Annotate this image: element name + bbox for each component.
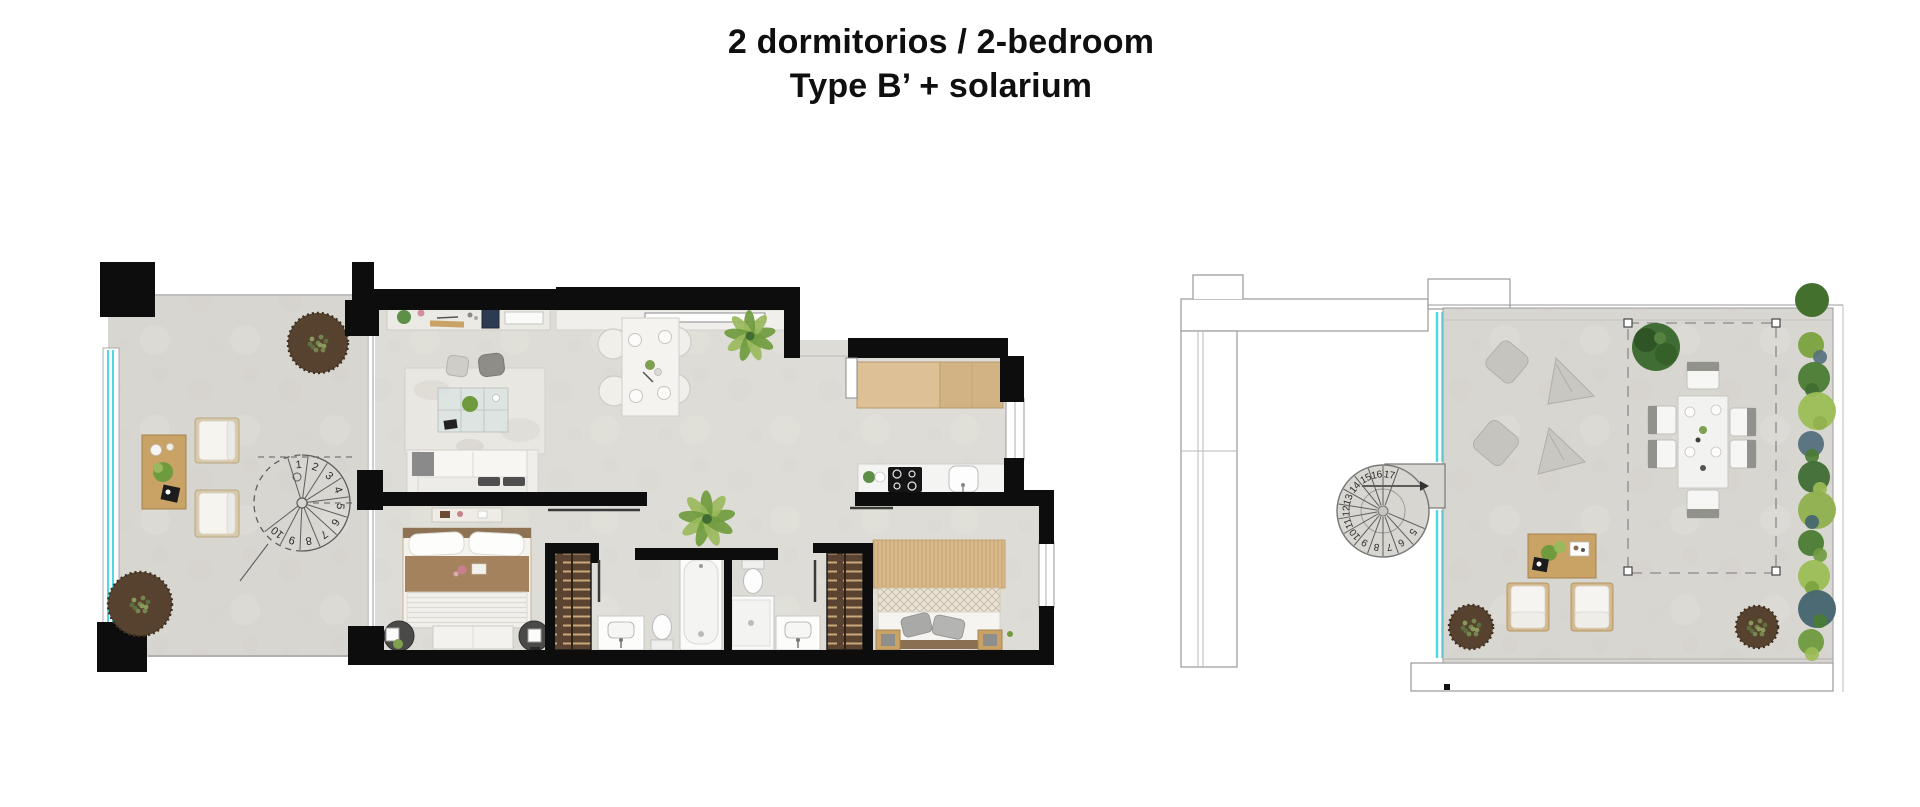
main-floor-plan: 12345678910 [97,262,1054,672]
deck-planter-left [1449,605,1493,649]
bathroom2-sink [776,616,820,650]
terrace-planter-top [288,313,348,373]
column-top-left [100,262,155,317]
wardrobe-bedroom2 [827,553,863,650]
terrace-armchair-2 [195,490,239,537]
floor-plans-canvas: 12345678910 [0,0,1920,807]
deck-armchair-1 [1507,583,1549,631]
svg-text:1: 1 [295,459,302,471]
svg-text:5: 5 [334,503,346,510]
kitchen-cabinets [857,362,1003,408]
glass-coffee-table [438,388,508,432]
deck-planter-right [1736,606,1778,648]
deck-tree [1632,323,1680,371]
deck-coffee-table [1528,534,1596,578]
sofa [407,450,538,493]
nightstand-bedroom2-left [876,630,900,650]
sideboard [387,308,550,330]
nightstand-bedroom1-left [384,621,414,651]
bathroom1-sink [598,616,644,650]
terrace-armchair-1 [195,418,239,463]
bathtub [680,556,722,650]
pouf-light [446,355,470,378]
bedroom2-window [1039,542,1054,608]
bedroom1-dresser [432,508,502,522]
terrace-planter-bottom [108,572,172,636]
spiral-staircase-solarium: 567891011121314151617 [1337,464,1445,557]
shower [728,596,774,650]
bathroom1-toilet [651,615,673,651]
kitchen-island [858,464,1006,494]
pouf-dark [478,352,505,377]
terrace-coffee-table [142,435,186,509]
bathroom2-toilet [742,560,764,594]
deck-armchair-2 [1571,583,1613,631]
solarium-plan: 567891011121314151617 [1181,275,1843,692]
wardrobe-bedroom1 [553,553,591,650]
kitchen-window [1006,398,1024,460]
